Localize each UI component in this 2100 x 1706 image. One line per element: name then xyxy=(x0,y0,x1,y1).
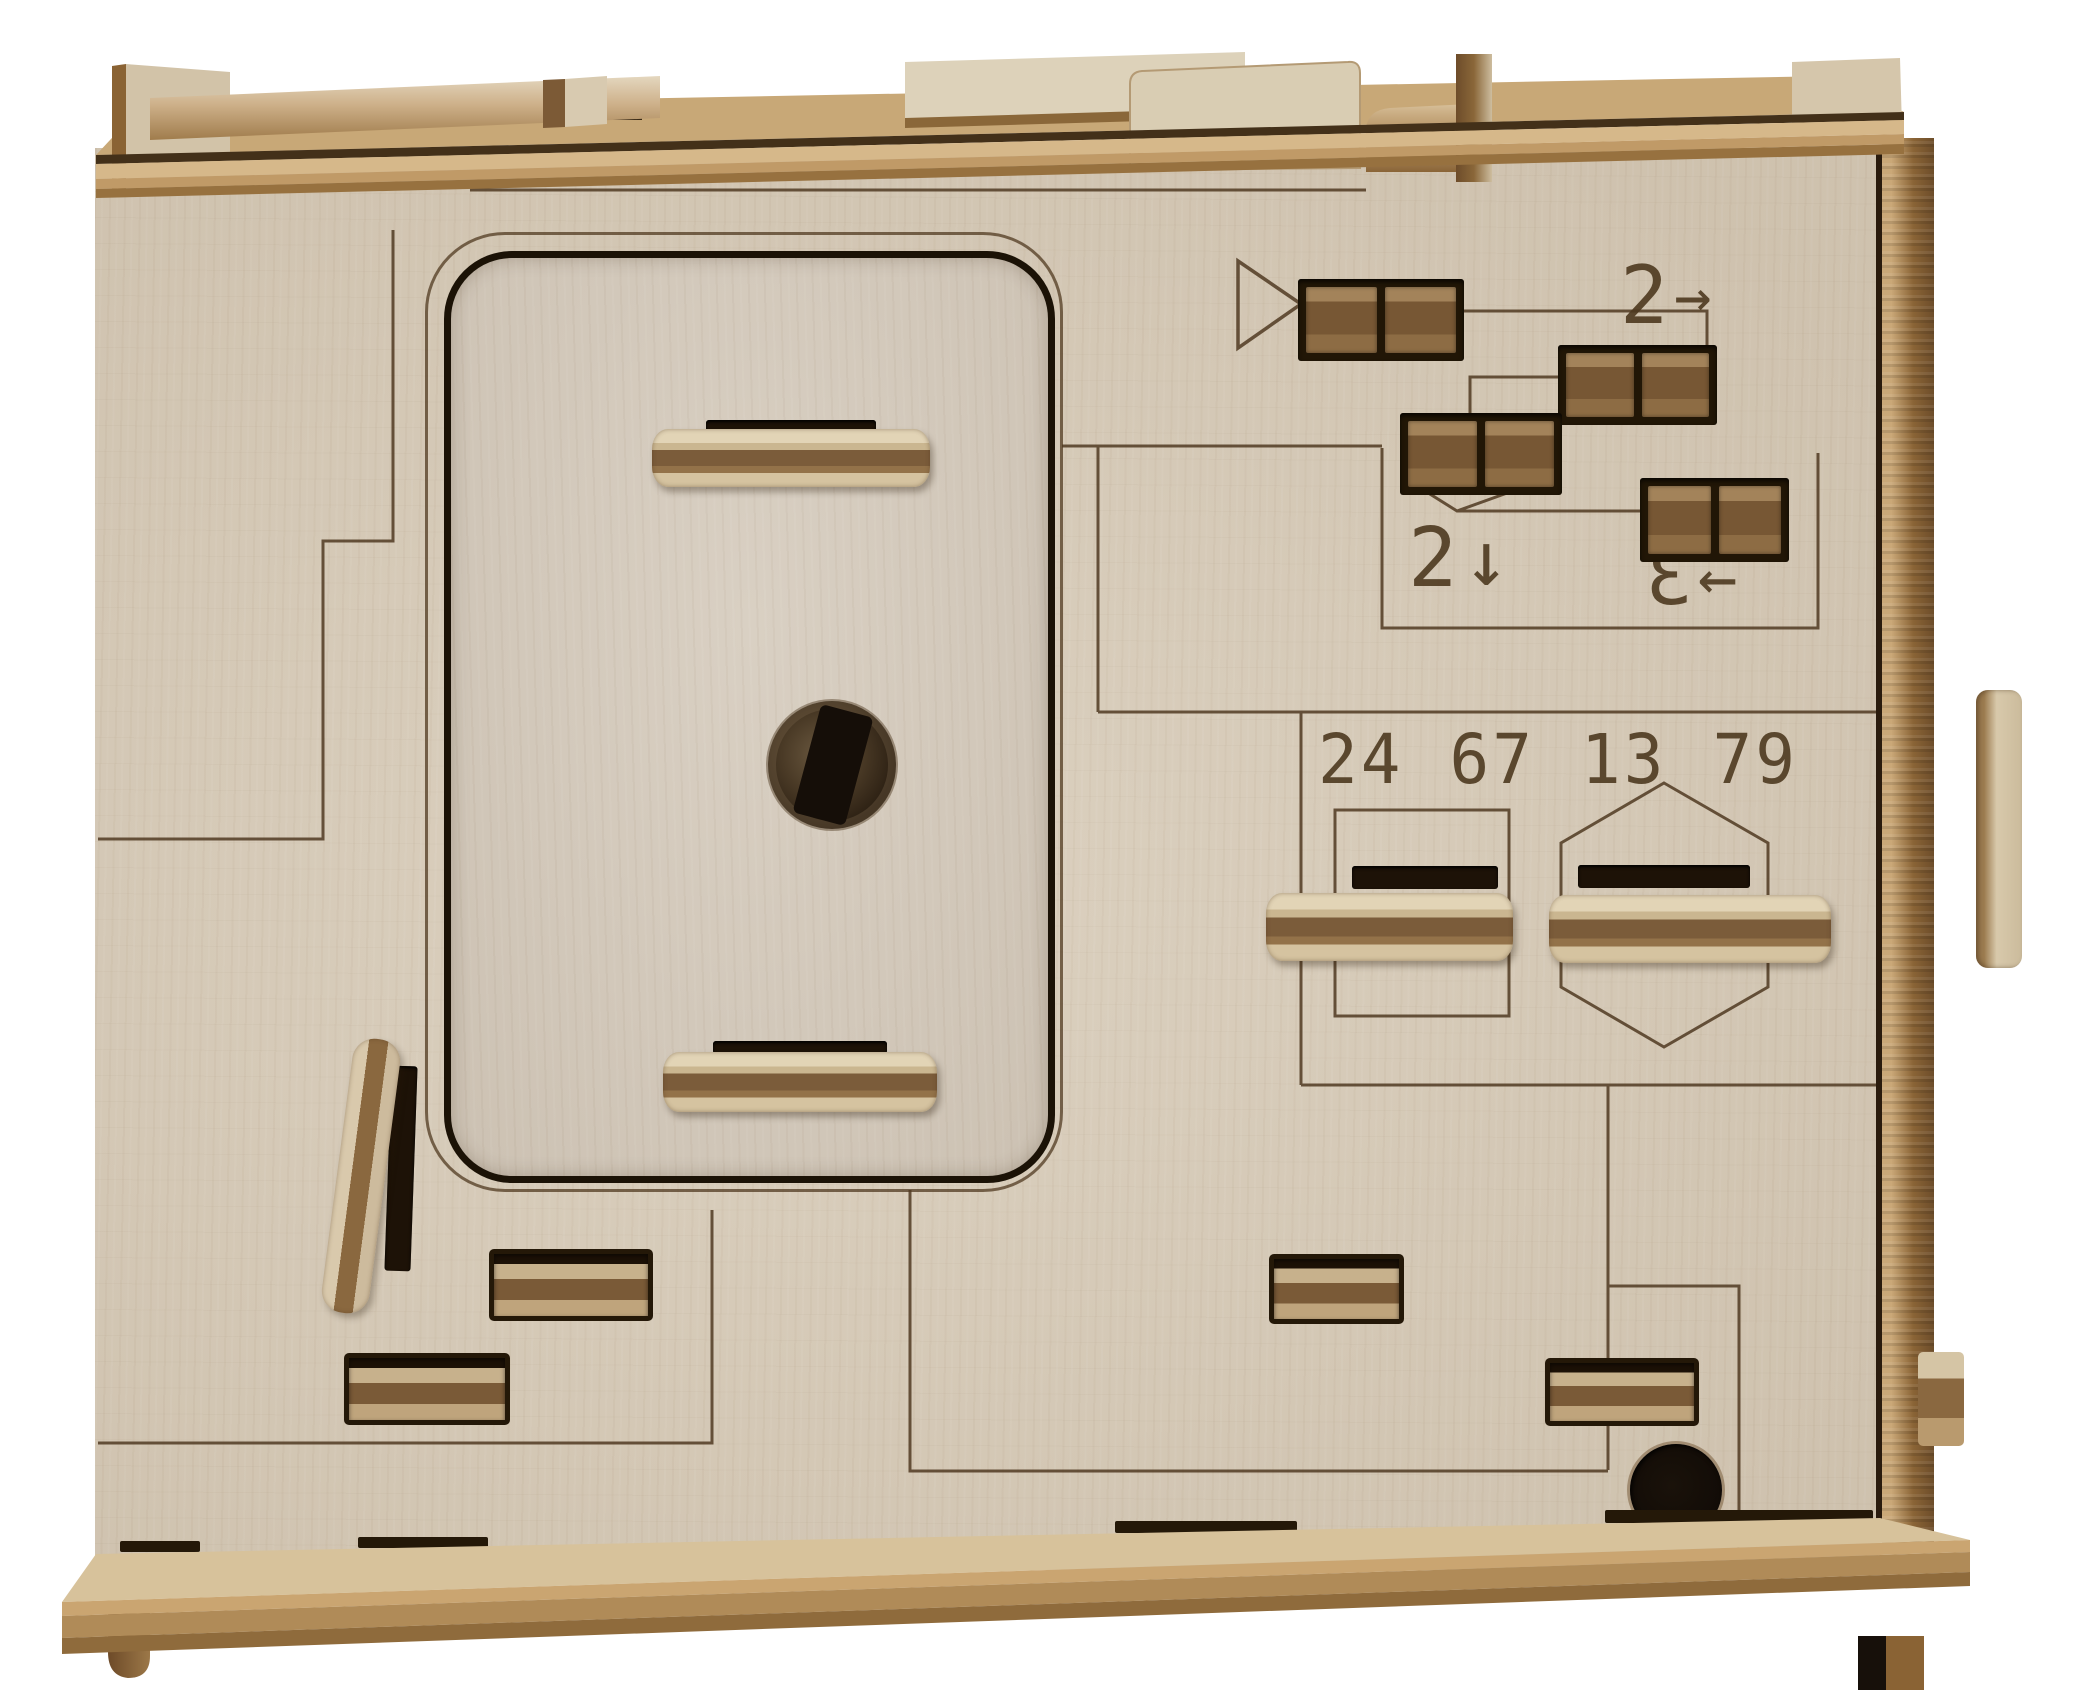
puzzle-box-photo: 2 → 2 ↓ 3 ← 24 67 13 79 xyxy=(0,0,2100,1706)
small-block-dark xyxy=(543,79,565,128)
box-lid xyxy=(0,0,2100,1706)
small-block xyxy=(565,76,607,127)
